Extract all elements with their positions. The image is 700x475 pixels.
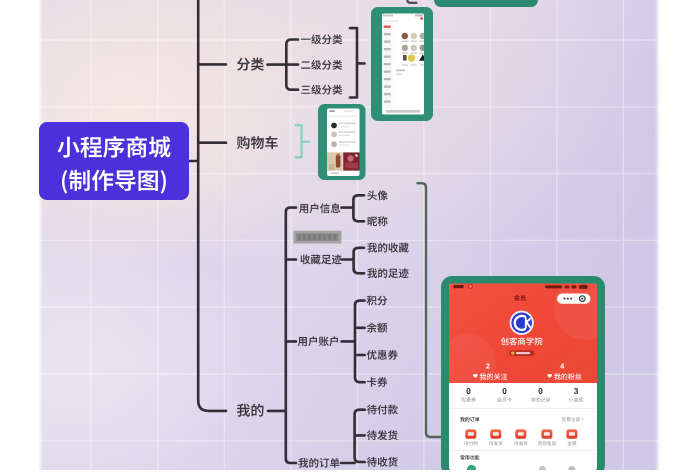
svg-text:2: 2 xyxy=(486,361,490,370)
svg-text:0: 0 xyxy=(466,387,471,396)
svg-text:0: 0 xyxy=(538,387,543,396)
svg-text:3: 3 xyxy=(574,387,579,396)
svg-text:0: 0 xyxy=(502,387,507,396)
